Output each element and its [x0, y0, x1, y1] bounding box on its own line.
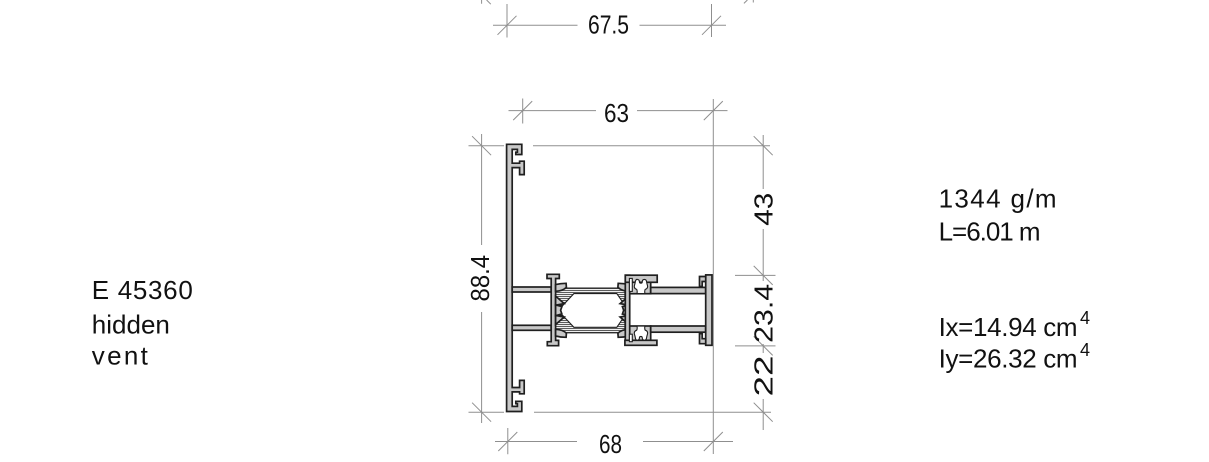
svg-text:88.4: 88.4: [465, 255, 495, 302]
svg-text:4: 4: [1080, 340, 1090, 360]
svg-text:4: 4: [1080, 308, 1090, 328]
svg-text:E 45360: E 45360: [92, 275, 193, 305]
svg-text:hidden: hidden: [92, 310, 170, 340]
svg-text:63: 63: [604, 98, 629, 128]
svg-text:68: 68: [599, 429, 622, 459]
svg-text:vent: vent: [92, 341, 149, 371]
svg-text:43: 43: [749, 193, 779, 226]
svg-text:L=6.01 m: L=6.01 m: [939, 217, 1041, 247]
svg-text:22: 22: [749, 356, 779, 397]
svg-text:Iy=26.32 cm: Iy=26.32 cm: [939, 344, 1078, 374]
svg-text:Ix=14.94 cm: Ix=14.94 cm: [939, 312, 1078, 342]
svg-text:67.5: 67.5: [588, 10, 629, 40]
svg-text:23.4: 23.4: [749, 284, 779, 343]
svg-text:1344 g/m: 1344 g/m: [939, 183, 1057, 213]
